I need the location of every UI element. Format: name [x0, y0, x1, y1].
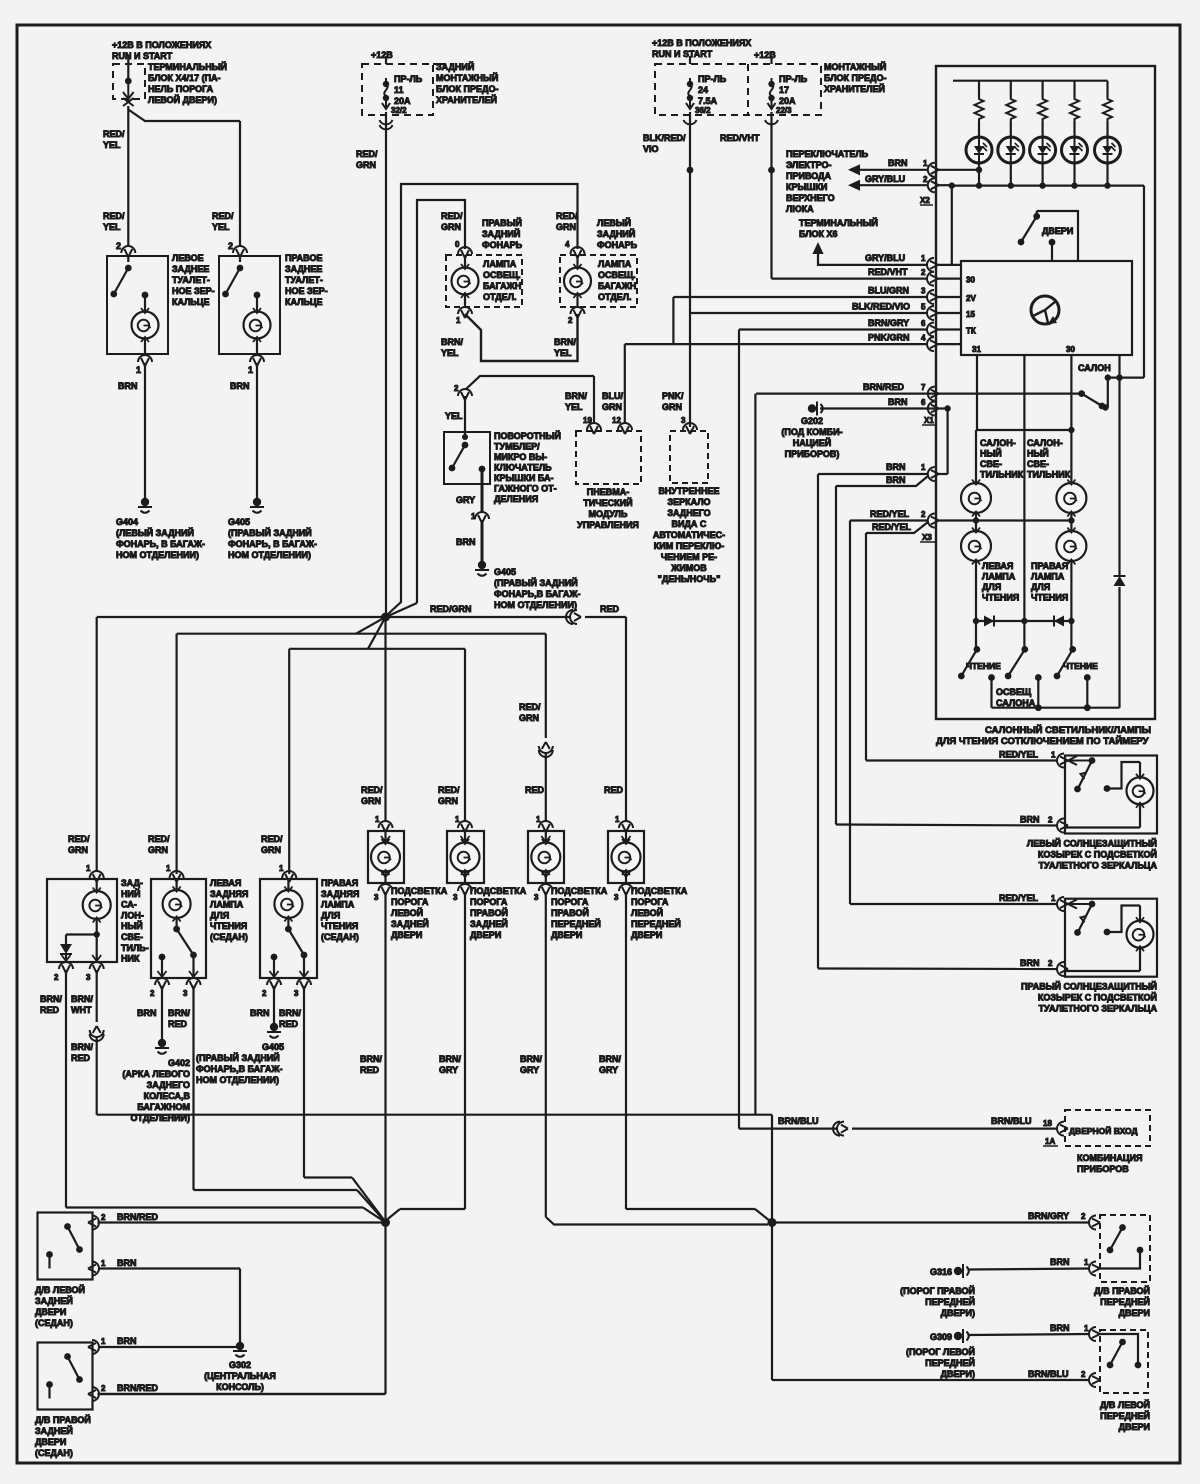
- svg-text:(ПОРОГ ЛЕВОЙ: (ПОРОГ ЛЕВОЙ: [906, 1346, 975, 1357]
- svg-text:ОСВЕЩ.: ОСВЕЩ.: [483, 270, 521, 280]
- svg-text:BRN/: BRN/: [599, 1054, 621, 1064]
- svg-text:ПНЕВМА-: ПНЕВМА-: [587, 487, 629, 497]
- svg-text:BRN/: BRN/: [71, 994, 93, 1004]
- svg-text:12: 12: [612, 416, 621, 425]
- svg-text:RED/: RED/: [361, 785, 383, 795]
- svg-text:VIO: VIO: [643, 144, 659, 154]
- svg-text:ЧТЕНИЕ: ЧТЕНИЕ: [966, 661, 1001, 671]
- svg-text:BRN: BRN: [888, 397, 908, 407]
- svg-text:"ДЕНЬ/НОЧЬ": "ДЕНЬ/НОЧЬ": [658, 574, 721, 584]
- svg-text:1: 1: [101, 1337, 106, 1346]
- svg-text:X3: X3: [922, 533, 932, 542]
- svg-text:GRY: GRY: [456, 495, 475, 505]
- svg-text:(ПРАВЫЙ ЗАДНИЙ: (ПРАВЫЙ ЗАДНИЙ: [196, 1052, 280, 1063]
- svg-text:ПРИВОДА: ПРИВОДА: [786, 171, 832, 181]
- svg-text:RED: RED: [600, 604, 620, 614]
- svg-text:НЫЙ: НЫЙ: [1027, 448, 1049, 459]
- svg-text:ЧТЕНИЯ: ЧТЕНИЯ: [982, 593, 1019, 603]
- svg-text:ФОНАРЬ: ФОНАРЬ: [482, 240, 523, 250]
- svg-text:ЖИМОВ: ЖИМОВ: [670, 563, 707, 573]
- svg-text:RED: RED: [525, 785, 545, 795]
- svg-text:КИМ ПЕРЕКЛЮ-: КИМ ПЕРЕКЛЮ-: [654, 541, 725, 551]
- svg-text:1: 1: [456, 316, 461, 325]
- svg-text:GRN: GRN: [261, 845, 281, 855]
- svg-text:ТУАЛЕТНОГО ЗЕРКАЛЬЦА: ТУАЛЕТНОГО ЗЕРКАЛЬЦА: [1039, 1004, 1158, 1014]
- svg-text:ЛАМПА: ЛАМПА: [210, 900, 244, 910]
- svg-text:ФОНАРЬ,В БАГАЖ-: ФОНАРЬ,В БАГАЖ-: [494, 589, 580, 599]
- svg-text:(СЕДАН): (СЕДАН): [35, 1318, 73, 1328]
- svg-text:Д/В ПРАВОЙ: Д/В ПРАВОЙ: [1094, 1285, 1150, 1296]
- svg-text:BRN: BRN: [117, 1258, 137, 1268]
- svg-text:1: 1: [248, 365, 253, 375]
- svg-text:BRN/: BRN/: [279, 1008, 301, 1018]
- svg-text:2: 2: [921, 268, 926, 277]
- svg-text:32/2: 32/2: [391, 106, 407, 115]
- svg-text:ДВЕРНОЙ ВХОД: ДВЕРНОЙ ВХОД: [1069, 1125, 1138, 1136]
- svg-text:2: 2: [101, 1213, 106, 1222]
- svg-text:YEL: YEL: [212, 222, 230, 232]
- svg-text:BRN/BLU: BRN/BLU: [991, 1116, 1032, 1126]
- svg-text:RED/: RED/: [148, 834, 170, 844]
- svg-text:БЛОК X6: БЛОК X6: [799, 229, 838, 239]
- svg-text:ЗАДНЕЕ: ЗАДНЕЕ: [172, 264, 209, 274]
- svg-text:YEL: YEL: [554, 348, 572, 358]
- svg-text:1: 1: [1084, 1258, 1089, 1267]
- svg-text:ЧТЕНИЕ: ЧТЕНИЕ: [1063, 661, 1098, 671]
- svg-text:САЛОННЫЙ СВЕТИЛЬНИК/ЛАМПЫ: САЛОННЫЙ СВЕТИЛЬНИК/ЛАМПЫ: [985, 724, 1151, 736]
- svg-text:20А: 20А: [394, 96, 411, 106]
- svg-text:ЛАМПА: ЛАМПА: [598, 259, 632, 269]
- svg-text:ПОДСВЕТКА: ПОДСВЕТКА: [551, 886, 608, 896]
- svg-text:BRN: BRN: [118, 381, 138, 391]
- svg-text:BRN/GRY: BRN/GRY: [1028, 1211, 1069, 1221]
- svg-text:МИКРО ВЫ-: МИКРО ВЫ-: [494, 452, 547, 462]
- svg-text:Д/В ЛЕВОЙ: Д/В ЛЕВОЙ: [1100, 1399, 1150, 1410]
- svg-text:МОНТАЖНЫЙ: МОНТАЖНЫЙ: [824, 61, 886, 72]
- svg-text:RED/: RED/: [438, 785, 460, 795]
- svg-text:ЛЕВЫЙ: ЛЕВЫЙ: [597, 217, 631, 228]
- svg-text:BRN/RED: BRN/RED: [117, 1383, 159, 1393]
- svg-text:G405: G405: [262, 1042, 284, 1052]
- svg-text:GRN: GRN: [662, 402, 682, 412]
- svg-text:YEL: YEL: [565, 402, 583, 412]
- svg-text:КЛЮЧАТЕЛЬ: КЛЮЧАТЕЛЬ: [494, 463, 552, 473]
- svg-text:BRN: BRN: [1050, 1257, 1070, 1267]
- svg-text:СВЕ-: СВЕ-: [121, 932, 143, 942]
- svg-text:КОЗЫРЕК С ПОДСВЕТКОЙ: КОЗЫРЕК С ПОДСВЕТКОЙ: [1038, 992, 1157, 1003]
- svg-text:2: 2: [150, 989, 155, 998]
- svg-text:G309: G309: [930, 1332, 952, 1342]
- svg-text:ПР-ЛЬ: ПР-ЛЬ: [779, 74, 808, 84]
- svg-text:ЧЕНИЕМ РЕ-: ЧЕНИЕМ РЕ-: [661, 552, 717, 562]
- svg-text:BRN: BRN: [456, 537, 476, 547]
- svg-text:RED/: RED/: [356, 149, 378, 159]
- svg-text:(АРКА ЛЕВОГО: (АРКА ЛЕВОГО: [122, 1069, 190, 1079]
- svg-text:GRN: GRN: [602, 402, 622, 412]
- svg-text:GRN: GRN: [519, 713, 539, 723]
- svg-text:ДВЕРИ: ДВЕРИ: [35, 1307, 66, 1317]
- svg-text:ПРАВОЕ: ПРАВОЕ: [285, 253, 322, 263]
- svg-text:3: 3: [453, 893, 458, 902]
- svg-text:ЛЕВАЯ: ЛЕВАЯ: [982, 561, 1013, 571]
- svg-text:ПРИБОРОВ): ПРИБОРОВ): [785, 449, 840, 459]
- svg-text:ЗАДНЕЙ: ЗАДНЕЙ: [391, 918, 429, 929]
- svg-text:НОМ ОТДЕЛЕНИИ): НОМ ОТДЕЛЕНИИ): [116, 550, 199, 560]
- svg-text:ДЕЛЕНИЯ: ДЕЛЕНИЯ: [494, 494, 538, 504]
- svg-text:+12В: +12В: [371, 50, 393, 60]
- svg-text:RED: RED: [71, 1053, 91, 1063]
- svg-text:2: 2: [454, 384, 459, 393]
- svg-text:15: 15: [966, 310, 975, 319]
- svg-text:ДЛЯ: ДЛЯ: [1031, 582, 1050, 592]
- svg-text:ПОДСВЕТКА: ПОДСВЕТКА: [391, 886, 448, 896]
- svg-text:G302: G302: [229, 1360, 251, 1370]
- svg-text:1А: 1А: [1045, 1137, 1055, 1146]
- svg-text:2: 2: [228, 241, 233, 251]
- svg-text:GRN: GRN: [148, 845, 168, 855]
- svg-text:GRN: GRN: [361, 796, 381, 806]
- svg-text:G404: G404: [116, 517, 138, 527]
- svg-text:ДВЕРИ: ДВЕРИ: [1119, 1308, 1150, 1318]
- svg-text:СА-: СА-: [121, 900, 137, 910]
- svg-text:ЛЕВОЙ: ЛЕВОЙ: [391, 907, 423, 918]
- svg-text:GRY: GRY: [599, 1065, 618, 1075]
- svg-text:ЗАДНЕЕ: ЗАДНЕЕ: [285, 264, 322, 274]
- svg-text:ЛЕВОЙ ДВЕРИ): ЛЕВОЙ ДВЕРИ): [148, 94, 217, 105]
- svg-text:BRN: BRN: [137, 1008, 157, 1018]
- svg-text:ДВЕРИ: ДВЕРИ: [551, 930, 582, 940]
- svg-text:АВТОМАТИЧЕС-: АВТОМАТИЧЕС-: [653, 530, 725, 540]
- svg-text:3: 3: [534, 893, 539, 902]
- svg-text:1: 1: [921, 463, 926, 472]
- svg-text:ДЛЯ ЧТЕНИЯ СОТКЛЮЧЕНИЕМ ПО ТАЙ: ДЛЯ ЧТЕНИЯ СОТКЛЮЧЕНИЕМ ПО ТАЙМЕРУ: [936, 735, 1149, 747]
- svg-text:BRN: BRN: [230, 381, 250, 391]
- svg-text:RUN И START: RUN И START: [652, 49, 713, 59]
- svg-text:ТУАЛЕТ-: ТУАЛЕТ-: [172, 275, 210, 285]
- svg-text:BRN/RED: BRN/RED: [863, 382, 905, 392]
- svg-text:ПЕРЕДНЕЙ: ПЕРЕДНЕЙ: [925, 1357, 975, 1368]
- svg-text:BRN: BRN: [250, 1008, 270, 1018]
- svg-text:+12В: +12В: [754, 50, 776, 60]
- svg-text:ЗАДНЯЯ: ЗАДНЯЯ: [321, 889, 359, 899]
- svg-text:(ЦЕНТРАЛЬНАЯ: (ЦЕНТРАЛЬНАЯ: [204, 1371, 276, 1381]
- svg-text:ФОНАРЬ, В БАГАЖ-: ФОНАРЬ, В БАГАЖ-: [116, 539, 205, 549]
- svg-text:ЗЕРКАЛО: ЗЕРКАЛО: [667, 497, 710, 507]
- svg-text:(ЛЕВЫЙ ЗАДНИЙ: (ЛЕВЫЙ ЗАДНИЙ: [116, 527, 194, 538]
- svg-text:ФОНАРЬ,В БАГАЖ-: ФОНАРЬ,В БАГАЖ-: [196, 1064, 282, 1074]
- svg-text:RED/YEL: RED/YEL: [999, 750, 1039, 760]
- svg-text:BRN/: BRN/: [168, 1008, 190, 1018]
- svg-text:BRN/: BRN/: [439, 1054, 461, 1064]
- svg-text:2: 2: [1048, 816, 1053, 825]
- svg-text:СВЕ-: СВЕ-: [1027, 459, 1049, 469]
- svg-text:BRN: BRN: [1020, 815, 1040, 825]
- svg-text:ЛЕВАЯ: ЛЕВАЯ: [210, 878, 241, 888]
- svg-text:5: 5: [921, 303, 926, 312]
- svg-text:ЛАМПА: ЛАМПА: [1031, 572, 1065, 582]
- svg-text:3: 3: [294, 989, 299, 998]
- svg-text:36/2: 36/2: [695, 106, 711, 115]
- svg-text:ТИЛЬНИК: ТИЛЬНИК: [1027, 470, 1071, 480]
- svg-text:БАГАЖН: БАГАЖН: [598, 281, 636, 291]
- svg-text:BRN: BRN: [117, 1336, 137, 1346]
- svg-text:ЛАМПА: ЛАМПА: [982, 572, 1016, 582]
- svg-text:4: 4: [565, 240, 570, 249]
- svg-text:RED/: RED/: [103, 211, 125, 221]
- svg-text:ЛЕВЫЙ СОЛНЦЕЗАЩИТНЫЙ: ЛЕВЫЙ СОЛНЦЕЗАЩИТНЫЙ: [1027, 838, 1157, 849]
- svg-text:YEL: YEL: [441, 348, 459, 358]
- svg-text:3: 3: [374, 893, 379, 902]
- svg-text:BLU/: BLU/: [602, 391, 623, 401]
- svg-text:YEL: YEL: [445, 411, 463, 421]
- svg-text:7: 7: [921, 383, 926, 392]
- svg-text:2: 2: [54, 973, 59, 982]
- svg-text:ХРАНИТЕЛЕЙ: ХРАНИТЕЛЕЙ: [436, 94, 497, 105]
- svg-text:RED/: RED/: [519, 702, 541, 712]
- svg-text:(ПОРОГ ПРАВОЙ: (ПОРОГ ПРАВОЙ: [900, 1285, 975, 1296]
- svg-text:2: 2: [568, 316, 573, 325]
- svg-text:RED/: RED/: [212, 211, 234, 221]
- svg-text:ДЛЯ: ДЛЯ: [210, 910, 229, 920]
- svg-text:BRN/: BRN/: [520, 1054, 542, 1064]
- svg-text:2: 2: [921, 510, 926, 519]
- svg-text:BRN/GRY: BRN/GRY: [868, 318, 909, 328]
- svg-text:BRN/: BRN/: [565, 391, 587, 401]
- svg-text:ЗАДНЕЙ: ЗАДНЕЙ: [470, 918, 508, 929]
- svg-text:BRN/: BRN/: [441, 337, 463, 347]
- svg-text:ПЕРЕДНЕЙ: ПЕРЕДНЕЙ: [925, 1296, 975, 1307]
- svg-text:ПРАВАЯ: ПРАВАЯ: [1031, 561, 1068, 571]
- svg-text:1: 1: [1051, 894, 1056, 903]
- svg-text:ТИЛЬНИК: ТИЛЬНИК: [980, 470, 1024, 480]
- svg-text:БЛОК ПРЕДО-: БЛОК ПРЕДО-: [436, 84, 498, 94]
- svg-text:САЛОН-: САЛОН-: [980, 438, 1016, 448]
- svg-text:2: 2: [1081, 1212, 1086, 1221]
- svg-text:ЗАДНЯЯ: ЗАДНЯЯ: [210, 889, 248, 899]
- svg-text:ПР-ЛЬ: ПР-ЛЬ: [394, 74, 423, 84]
- svg-text:30: 30: [966, 276, 975, 285]
- svg-text:КОНСОЛЬ): КОНСОЛЬ): [216, 1382, 264, 1392]
- svg-text:ПРАВЫЙ СОЛНЦЕЗАЩИТНЫЙ: ПРАВЫЙ СОЛНЦЕЗАЩИТНЫЙ: [1021, 981, 1157, 992]
- svg-text:RED/: RED/: [103, 129, 125, 139]
- svg-text:КОМБИНАЦИЯ: КОМБИНАЦИЯ: [1077, 1153, 1142, 1163]
- svg-text:МОНТАЖНЫЙ: МОНТАЖНЫЙ: [436, 72, 498, 83]
- svg-text:НОМ ОТДЕЛЕНИИ): НОМ ОТДЕЛЕНИИ): [196, 1075, 279, 1085]
- svg-text:(СЕДАН): (СЕДАН): [321, 932, 359, 942]
- svg-text:1: 1: [279, 864, 284, 873]
- svg-text:ОТДЕЛ.: ОТДЕЛ.: [598, 292, 632, 302]
- svg-text:RED: RED: [360, 1065, 380, 1075]
- svg-text:GRY: GRY: [439, 1065, 458, 1075]
- svg-text:ТУАЛЕТНОГО ЗЕРКАЛЬЦА: ТУАЛЕТНОГО ЗЕРКАЛЬЦА: [1039, 861, 1158, 871]
- svg-text:RED/YEL: RED/YEL: [999, 893, 1039, 903]
- svg-text:КАЛЬЦЕ: КАЛЬЦЕ: [172, 297, 209, 307]
- svg-text:ЧТЕНИЯ: ЧТЕНИЯ: [1031, 593, 1068, 603]
- svg-text:ПРИБОРОВ: ПРИБОРОВ: [1077, 1164, 1129, 1174]
- svg-text:RED: RED: [168, 1019, 188, 1029]
- svg-text:7.5А: 7.5А: [698, 96, 718, 106]
- svg-text:ТИЧЕСКИЙ: ТИЧЕСКИЙ: [583, 497, 632, 508]
- svg-text:КРЫШКИ БА-: КРЫШКИ БА-: [494, 473, 553, 483]
- svg-text:1: 1: [921, 254, 926, 263]
- svg-text:БАГАЖНОМ: БАГАЖНОМ: [137, 1102, 190, 1112]
- svg-text:КОЗЫРЕК С ПОДСВЕТКОЙ: КОЗЫРЕК С ПОДСВЕТКОЙ: [1038, 849, 1157, 860]
- svg-text:НЕЛЬ ПОРОГА: НЕЛЬ ПОРОГА: [148, 84, 214, 94]
- svg-text:УПРАВЛЕНИЯ: УПРАВЛЕНИЯ: [577, 520, 639, 530]
- svg-text:ЛОН-: ЛОН-: [121, 910, 144, 920]
- svg-text:G405: G405: [494, 567, 516, 577]
- svg-text:G202: G202: [801, 416, 823, 426]
- svg-text:ЗАДНЕГО: ЗАДНЕГО: [147, 1080, 190, 1090]
- svg-text:RED/GRN: RED/GRN: [430, 604, 472, 614]
- svg-text:ЛАМПА: ЛАМПА: [321, 900, 355, 910]
- svg-text:BRN: BRN: [1020, 958, 1040, 968]
- svg-text:3: 3: [921, 287, 926, 296]
- svg-text:BRN/BLU: BRN/BLU: [1028, 1369, 1069, 1379]
- svg-text:3: 3: [614, 893, 619, 902]
- svg-text:GRN: GRN: [441, 222, 461, 232]
- svg-text:RED: RED: [604, 785, 624, 795]
- svg-text:ВНУТРЕННЕЕ: ВНУТРЕННЕЕ: [658, 486, 719, 496]
- svg-text:НОМ ОТДЕЛЕНИИ): НОМ ОТДЕЛЕНИИ): [494, 600, 577, 610]
- svg-text:2: 2: [1048, 959, 1053, 968]
- svg-text:ЧТЕНИЯ: ЧТЕНИЯ: [210, 921, 247, 931]
- svg-text:ЛЮКА: ЛЮКА: [786, 204, 814, 214]
- svg-text:(ПОД КОМБИ-: (ПОД КОМБИ-: [781, 427, 842, 437]
- svg-text:3: 3: [183, 989, 188, 998]
- svg-text:ПЕРЕДНЕЙ: ПЕРЕДНЕЙ: [551, 918, 601, 929]
- svg-text:24: 24: [698, 85, 708, 95]
- svg-text:GRY: GRY: [520, 1065, 539, 1075]
- svg-text:ПРАВАЯ: ПРАВАЯ: [321, 878, 358, 888]
- svg-text:ЭЛЕКТРО-: ЭЛЕКТРО-: [786, 160, 831, 170]
- svg-text:+12В В ПОЛОЖЕНИЯХ: +12В В ПОЛОЖЕНИЯХ: [652, 38, 751, 48]
- svg-text:ПРАВЫЙ: ПРАВЫЙ: [482, 217, 522, 228]
- svg-text:19: 19: [583, 416, 592, 425]
- svg-text:BLK/RED/: BLK/RED/: [643, 133, 686, 143]
- svg-text:RED/: RED/: [68, 834, 90, 844]
- svg-text:2V: 2V: [966, 294, 976, 303]
- svg-text:3: 3: [86, 973, 91, 982]
- svg-text:20А: 20А: [779, 96, 796, 106]
- svg-text:2: 2: [101, 1384, 106, 1393]
- svg-text:ДВЕРИ: ДВЕРИ: [631, 930, 662, 940]
- svg-text:30: 30: [1066, 345, 1075, 354]
- svg-text:ГАЖНОГО ОТ-: ГАЖНОГО ОТ-: [494, 484, 557, 494]
- svg-text:Д/В ЛЕВОЙ: Д/В ЛЕВОЙ: [35, 1284, 85, 1295]
- svg-text:BRN/BLU: BRN/BLU: [778, 1116, 819, 1126]
- svg-text:ПОРОГА: ПОРОГА: [470, 897, 508, 907]
- svg-text:ПРАВОЙ: ПРАВОЙ: [551, 907, 589, 918]
- svg-text:ПРАВОЙ: ПРАВОЙ: [470, 907, 508, 918]
- svg-text:YEL: YEL: [103, 140, 121, 150]
- svg-text:НОЕ ЗЕР-: НОЕ ЗЕР-: [172, 286, 215, 296]
- svg-text:ДЛЯ: ДЛЯ: [321, 910, 340, 920]
- svg-text:G405: G405: [228, 517, 250, 527]
- svg-text:RED/YEL: RED/YEL: [870, 509, 910, 519]
- svg-text:RED/: RED/: [556, 211, 578, 221]
- svg-text:СВЕ-: СВЕ-: [980, 459, 1002, 469]
- svg-text:BRN/: BRN/: [71, 1042, 93, 1052]
- svg-text:БЛОК ПРЕДО-: БЛОК ПРЕДО-: [824, 73, 886, 83]
- svg-text:НЫЙ: НЫЙ: [121, 920, 143, 931]
- svg-text:+12В В ПОЛОЖЕНИЯХ: +12В В ПОЛОЖЕНИЯХ: [112, 40, 211, 50]
- svg-text:САЛОН: САЛОН: [1078, 363, 1111, 373]
- svg-text:BLK/RED/VIO: BLK/RED/VIO: [852, 302, 910, 312]
- svg-text:(СЕДАН): (СЕДАН): [35, 1448, 73, 1458]
- svg-text:2: 2: [116, 241, 121, 251]
- svg-text:ПЕРЕДНЕЙ: ПЕРЕДНЕЙ: [1100, 1296, 1150, 1307]
- svg-text:1: 1: [375, 815, 380, 824]
- svg-text:КАЛЬЦЕ: КАЛЬЦЕ: [285, 297, 322, 307]
- svg-text:НИЙ: НИЙ: [121, 888, 140, 899]
- svg-text:BRN: BRN: [1050, 1323, 1070, 1333]
- svg-text:RUN И START: RUN И START: [112, 51, 173, 61]
- svg-text:ХРАНИТЕЛЕЙ: ХРАНИТЕЛЕЙ: [824, 83, 885, 94]
- svg-text:X1: X1: [924, 416, 934, 425]
- svg-text:YEL: YEL: [103, 222, 121, 232]
- svg-text:ДВЕРИ: ДВЕРИ: [1119, 1422, 1150, 1432]
- svg-text:(ПРАВЫЙ ЗАДНИЙ: (ПРАВЫЙ ЗАДНИЙ: [494, 577, 578, 588]
- svg-text:НОМ ОТДЕЛЕНИИ): НОМ ОТДЕЛЕНИИ): [228, 550, 311, 560]
- svg-text:МОДУЛЬ: МОДУЛЬ: [589, 509, 628, 519]
- svg-text:ТЕРМИНАЛЬНЫЙ: ТЕРМИНАЛЬНЫЙ: [799, 217, 878, 228]
- svg-text:0: 0: [455, 240, 460, 249]
- svg-text:1: 1: [136, 365, 141, 375]
- svg-text:RED/VHT: RED/VHT: [720, 133, 760, 143]
- svg-text:X2: X2: [920, 196, 930, 205]
- svg-text:1: 1: [923, 159, 928, 168]
- svg-text:BRN/: BRN/: [360, 1054, 382, 1064]
- svg-text:1: 1: [101, 1259, 106, 1268]
- svg-text:BRN: BRN: [888, 158, 908, 168]
- svg-text:PNK/GRN: PNK/GRN: [868, 333, 910, 343]
- svg-text:ЧТЕНИЯ: ЧТЕНИЯ: [321, 921, 358, 931]
- svg-text:ЗАДНИЙ: ЗАДНИЙ: [597, 228, 635, 239]
- svg-text:2: 2: [1081, 1370, 1086, 1379]
- svg-text:НАЦИЕЙ: НАЦИЕЙ: [793, 437, 832, 448]
- svg-text:BLU/GRN: BLU/GRN: [868, 286, 909, 296]
- svg-text:1: 1: [86, 864, 91, 873]
- svg-text:ЗАДНИЙ: ЗАДНИЙ: [436, 61, 474, 72]
- svg-text:RED/YEL: RED/YEL: [872, 522, 912, 532]
- svg-text:ПР-ЛЬ: ПР-ЛЬ: [698, 74, 727, 84]
- svg-text:GRY/BLU: GRY/BLU: [865, 253, 905, 263]
- svg-text:БЛОК X4/17 (ПА-: БЛОК X4/17 (ПА-: [148, 73, 221, 83]
- svg-text:ТУМБЛЕР/: ТУМБЛЕР/: [494, 442, 540, 452]
- svg-text:22/3: 22/3: [776, 106, 792, 115]
- svg-text:ДВЕРИ: ДВЕРИ: [1042, 226, 1073, 236]
- svg-text:2: 2: [923, 175, 928, 184]
- svg-text:ОТДЕЛ.: ОТДЕЛ.: [483, 292, 517, 302]
- svg-text:RED/VHT: RED/VHT: [868, 267, 908, 277]
- svg-text:1: 1: [615, 815, 620, 824]
- svg-text:BRN: BRN: [886, 462, 906, 472]
- svg-text:G316: G316: [930, 1267, 952, 1277]
- svg-text:PNK/: PNK/: [662, 391, 684, 401]
- svg-text:НИК: НИК: [121, 954, 140, 964]
- svg-text:НОЕ ЗЕР-: НОЕ ЗЕР-: [285, 286, 328, 296]
- svg-text:GRN: GRN: [68, 845, 88, 855]
- svg-text:(СЕДАН): (СЕДАН): [210, 932, 248, 942]
- svg-text:ТК: ТК: [966, 327, 976, 336]
- svg-text:ДВЕРИ): ДВЕРИ): [941, 1308, 975, 1318]
- svg-text:BRN: BRN: [886, 475, 906, 485]
- svg-text:ДВЕРИ: ДВЕРИ: [391, 930, 422, 940]
- svg-text:ПОРОГА: ПОРОГА: [391, 897, 429, 907]
- svg-text:6: 6: [921, 319, 926, 328]
- svg-text:ТЕРМИНАЛЬНЫЙ: ТЕРМИНАЛЬНЫЙ: [148, 61, 227, 72]
